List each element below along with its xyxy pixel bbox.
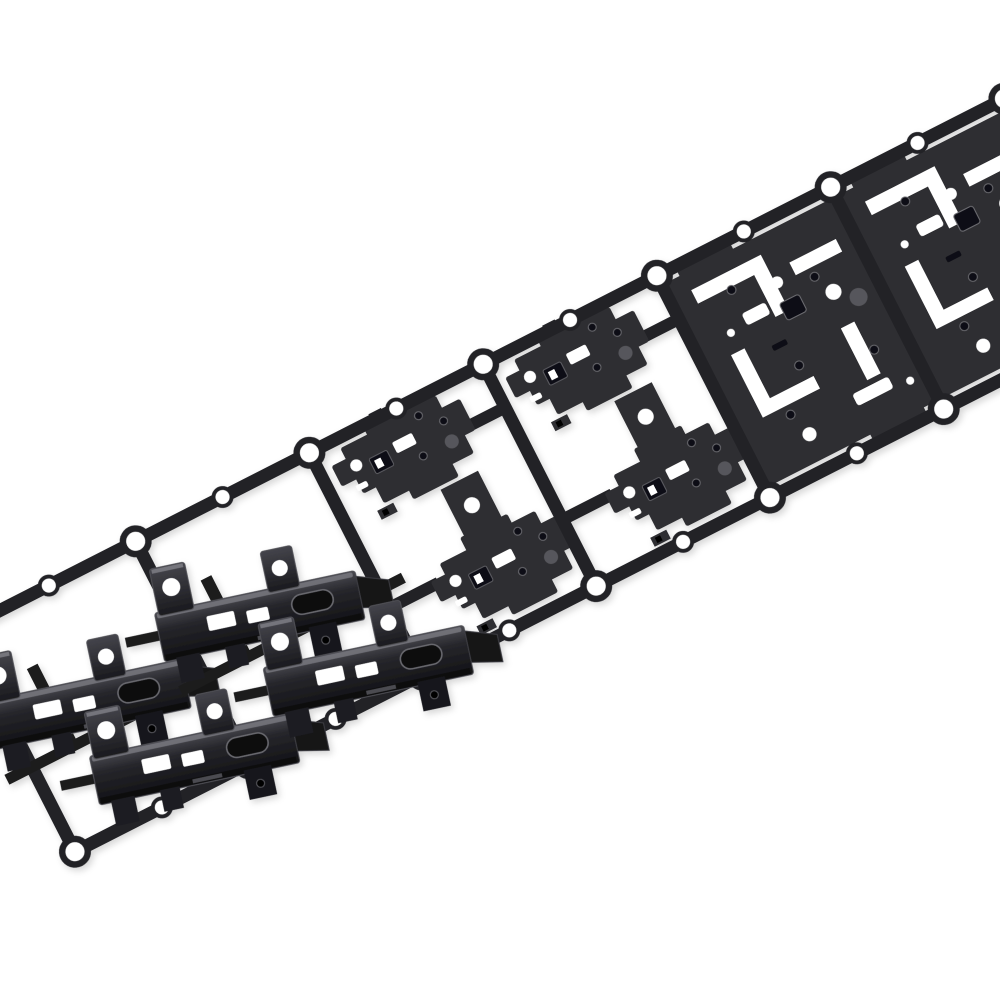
- photo-canvas: Close-up product photograph of black sta…: [0, 0, 1000, 1000]
- product-photo: [0, 0, 1000, 1000]
- photo-background: [0, 0, 1000, 1000]
